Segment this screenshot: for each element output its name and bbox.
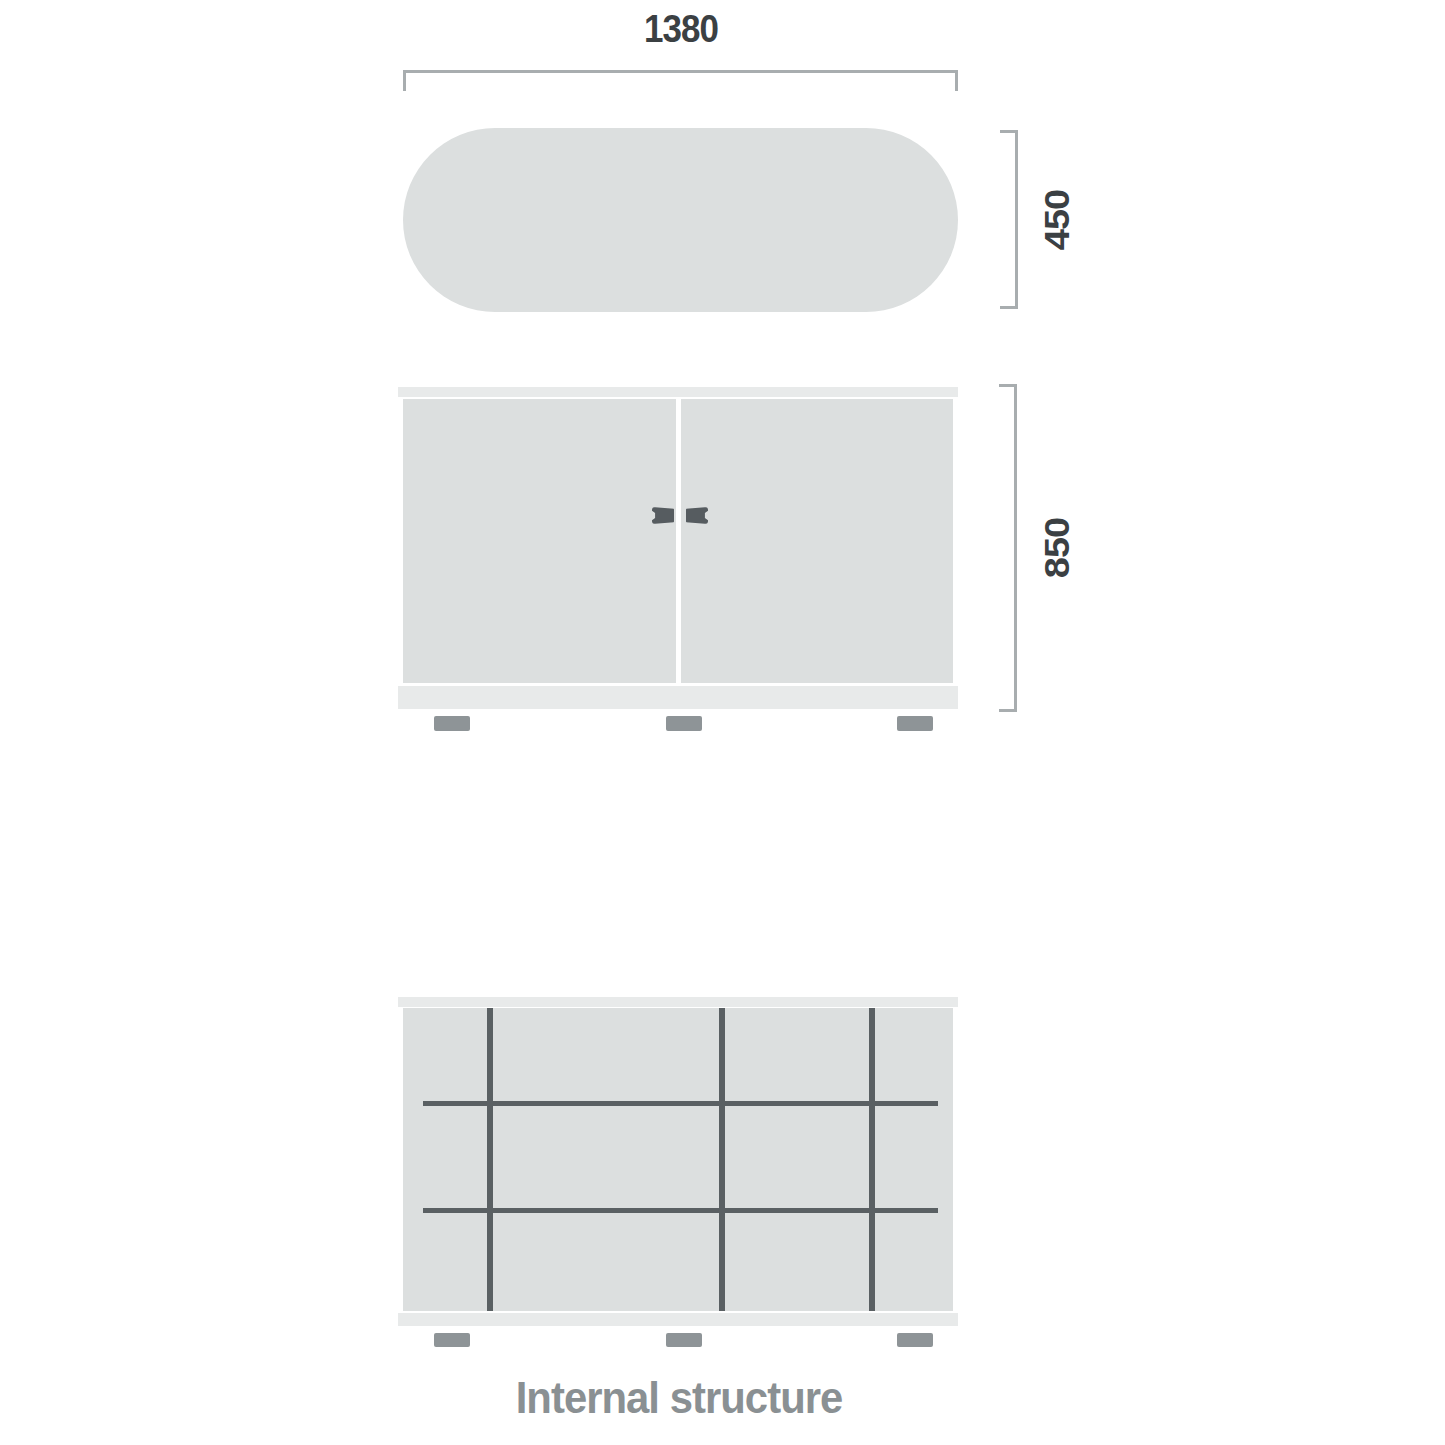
internal-shelf-2	[423, 1208, 938, 1213]
caption: Internal structure	[394, 1372, 964, 1424]
internal-shelf-1	[423, 1101, 938, 1106]
front-doors	[403, 399, 953, 683]
top-view-oval-panel	[403, 128, 958, 312]
internal-foot-right	[897, 1333, 933, 1347]
depth-dimension-label: 450	[1037, 160, 1077, 280]
right-door-handle	[686, 507, 708, 524]
internal-vertical-divider-3	[869, 1008, 875, 1311]
height-dimension-label: 850	[1037, 488, 1077, 608]
internal-foot-center	[666, 1333, 702, 1347]
internal-top-panel	[398, 997, 958, 1007]
width-dimension-bracket	[403, 70, 958, 91]
height-dimension-bracket	[999, 384, 1017, 712]
internal-foot-left	[434, 1333, 470, 1347]
left-door-handle	[652, 507, 674, 524]
width-dimension-label: 1380	[497, 6, 865, 52]
front-plinth	[398, 686, 958, 709]
front-foot-center	[666, 716, 702, 731]
furniture-technical-drawing: 1380 450 850 Internal structure	[0, 0, 1445, 1445]
depth-dimension-bracket	[1000, 130, 1018, 309]
internal-plinth	[398, 1313, 958, 1326]
front-top-panel	[398, 387, 958, 397]
front-view	[398, 387, 958, 731]
front-foot-left	[434, 716, 470, 731]
front-foot-right	[897, 716, 933, 731]
door-gap	[676, 399, 681, 683]
internal-vertical-divider-1	[487, 1008, 493, 1311]
internal-vertical-divider-2	[719, 1008, 725, 1311]
internal-structure-view	[398, 997, 958, 1347]
